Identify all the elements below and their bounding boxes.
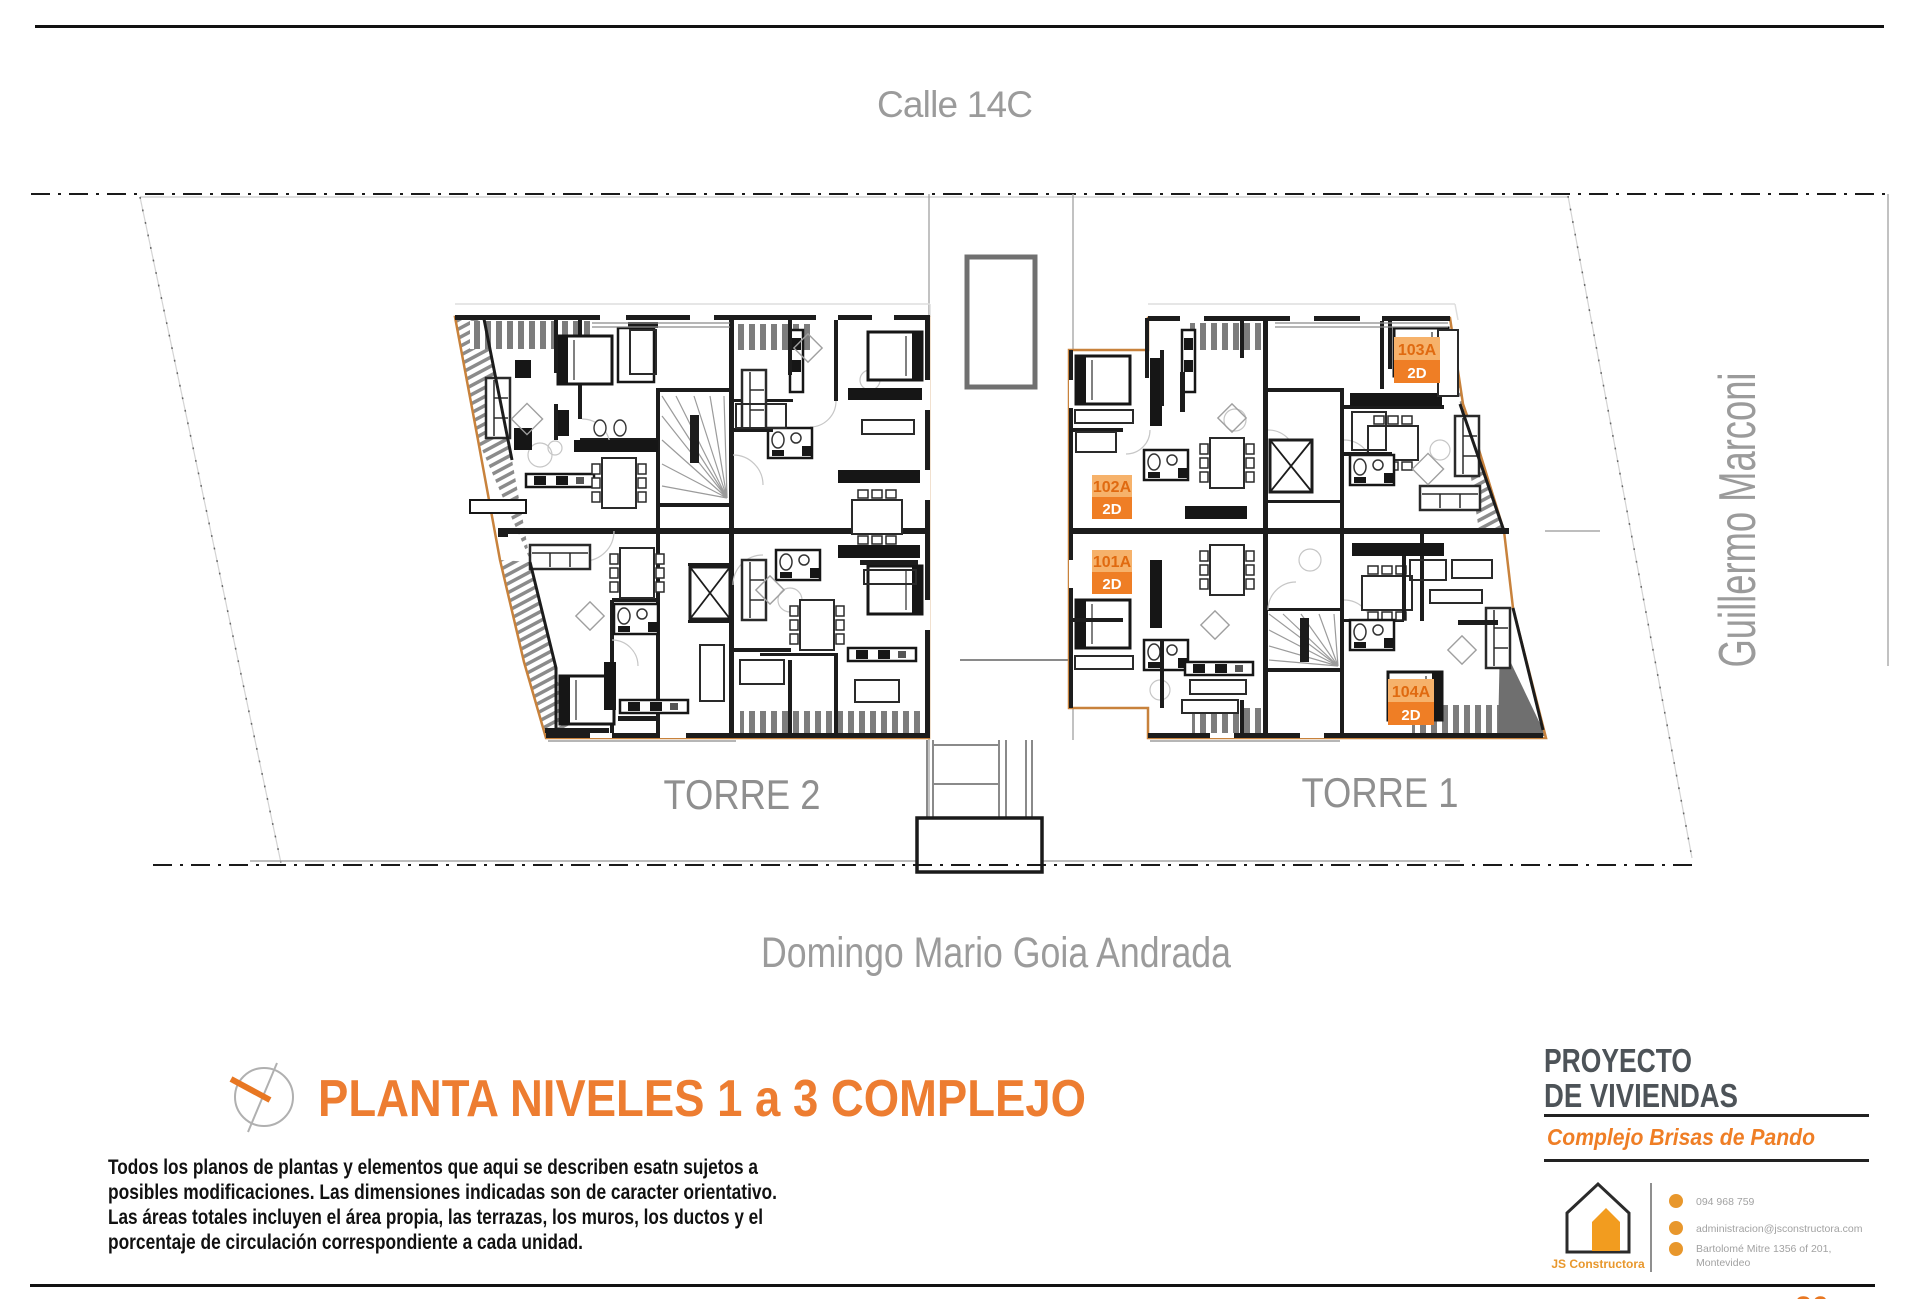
svg-text:2D: 2D <box>1102 576 1121 593</box>
svg-text:Calle 14C: Calle 14C <box>877 84 1033 125</box>
svg-text:posibles modificaciones. Las: posibles modificaciones. Las dimensiones… <box>108 1181 777 1204</box>
svg-text:DE VIVIENDAS: DE VIVIENDAS <box>1544 1077 1738 1114</box>
svg-text:TORRE 1: TORRE 1 <box>1302 769 1459 816</box>
svg-text:Bartolomé Mitre 1356 of 201,: Bartolomé Mitre 1356 of 201, <box>1696 1243 1831 1255</box>
svg-text:Domingo Mario Goia Andrada: Domingo Mario Goia Andrada <box>761 929 1231 977</box>
svg-text:JS Constructora: JS Constructora <box>1551 1257 1645 1271</box>
svg-text:Guillermo Marconi: Guillermo Marconi <box>1709 373 1767 668</box>
svg-text:2D: 2D <box>1401 707 1420 724</box>
svg-text:104A: 104A <box>1392 684 1431 701</box>
svg-text:2D: 2D <box>1407 365 1426 382</box>
svg-text:102A: 102A <box>1093 479 1132 496</box>
svg-text:TORRE 2: TORRE 2 <box>664 771 821 818</box>
svg-text:PLANTA NIVELES 1 a 3 COMPLEJO: PLANTA NIVELES 1 a 3 COMPLEJO <box>318 1070 1086 1128</box>
svg-text:101A: 101A <box>1093 554 1132 571</box>
svg-text:Las áreas totales incluyen el: Las áreas totales incluyen el área propi… <box>108 1206 763 1229</box>
svg-text:094 968 759: 094 968 759 <box>1696 1196 1755 1208</box>
svg-text:Todos los planos de plantas y: Todos los planos de plantas y elementos … <box>108 1156 758 1179</box>
svg-text:26: 26 <box>1795 1291 1828 1299</box>
svg-text:103A: 103A <box>1398 342 1437 359</box>
svg-text:porcentaje de circulación corr: porcentaje de circulación correspondient… <box>108 1231 583 1254</box>
svg-text:Complejo Brisas de Pando: Complejo Brisas de Pando <box>1547 1124 1815 1150</box>
svg-text:Montevideo: Montevideo <box>1696 1257 1750 1269</box>
svg-text:PROYECTO: PROYECTO <box>1544 1042 1692 1079</box>
svg-text:administracion@jsconstructora.: administracion@jsconstructora.com <box>1696 1223 1863 1235</box>
svg-text:2D: 2D <box>1102 501 1121 518</box>
